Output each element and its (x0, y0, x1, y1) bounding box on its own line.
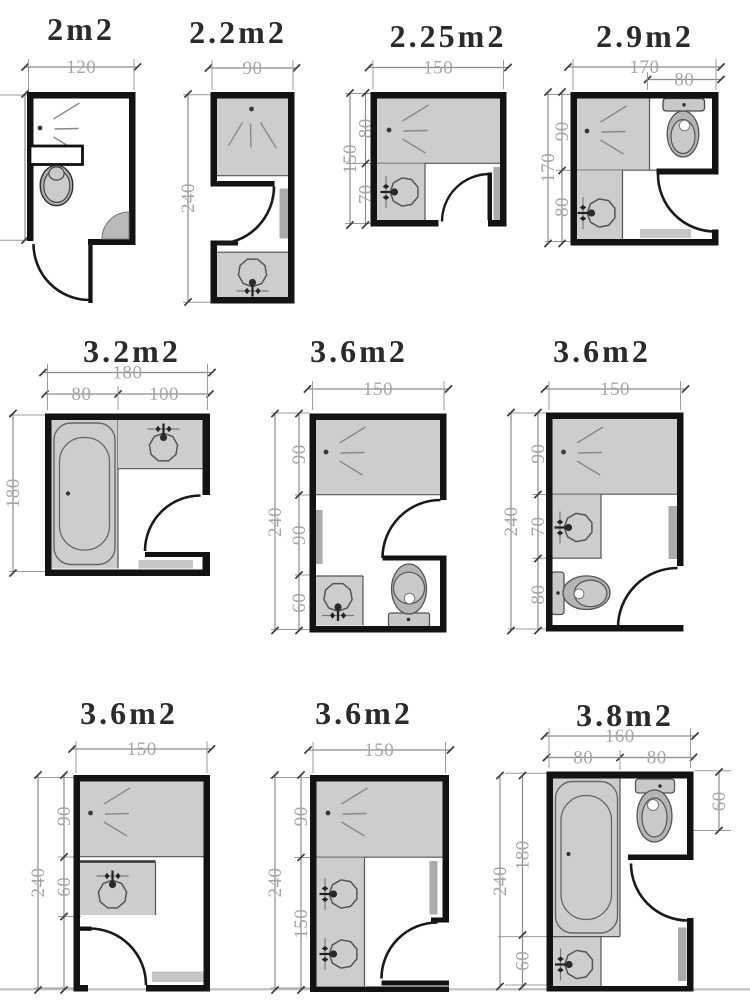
svg-text:2.2m2: 2.2m2 (189, 14, 287, 50)
svg-text:240: 240 (178, 183, 199, 213)
svg-text:2.25m2: 2.25m2 (390, 18, 507, 54)
svg-text:150: 150 (127, 739, 157, 760)
svg-text:90: 90 (528, 444, 549, 464)
svg-text:80: 80 (552, 197, 573, 217)
svg-text:80: 80 (528, 585, 549, 605)
svg-text:60: 60 (513, 951, 534, 971)
svg-text:170: 170 (538, 153, 559, 183)
svg-text:100: 100 (149, 384, 179, 405)
svg-text:160: 160 (605, 726, 635, 747)
svg-text:3.6m2: 3.6m2 (315, 695, 413, 731)
svg-text:240: 240 (501, 507, 522, 537)
svg-text:80: 80 (573, 748, 593, 769)
svg-text:120: 120 (66, 57, 96, 78)
svg-text:180: 180 (513, 840, 534, 870)
svg-text:150: 150 (364, 740, 394, 761)
svg-text:3.6m2: 3.6m2 (310, 333, 408, 369)
svg-text:60: 60 (54, 877, 75, 897)
svg-text:150: 150 (600, 379, 630, 400)
svg-text:80: 80 (647, 748, 667, 769)
svg-text:80: 80 (72, 384, 92, 405)
svg-text:60: 60 (709, 791, 730, 811)
svg-text:170: 170 (630, 57, 660, 78)
svg-text:150: 150 (291, 909, 312, 939)
svg-text:240: 240 (28, 868, 49, 898)
svg-text:2m2: 2m2 (47, 11, 115, 47)
svg-text:150: 150 (340, 144, 361, 174)
svg-text:90: 90 (54, 806, 75, 826)
svg-text:90: 90 (291, 806, 312, 826)
svg-text:240: 240 (265, 507, 286, 537)
svg-text:60: 60 (289, 593, 310, 613)
svg-text:3.6m2: 3.6m2 (553, 333, 651, 369)
svg-text:90: 90 (243, 58, 263, 79)
svg-text:240: 240 (265, 868, 286, 898)
svg-text:150: 150 (423, 58, 453, 79)
svg-text:90: 90 (289, 525, 310, 545)
svg-text:80: 80 (674, 70, 694, 91)
svg-text:2.9m2: 2.9m2 (596, 18, 694, 54)
svg-text:180: 180 (3, 478, 24, 508)
svg-text:180: 180 (113, 363, 143, 384)
svg-text:240: 240 (490, 866, 511, 896)
svg-text:70: 70 (528, 517, 549, 537)
svg-text:90: 90 (552, 121, 573, 141)
svg-text:150: 150 (363, 379, 393, 400)
svg-text:3.6m2: 3.6m2 (80, 695, 178, 731)
svg-text:90: 90 (289, 444, 310, 464)
